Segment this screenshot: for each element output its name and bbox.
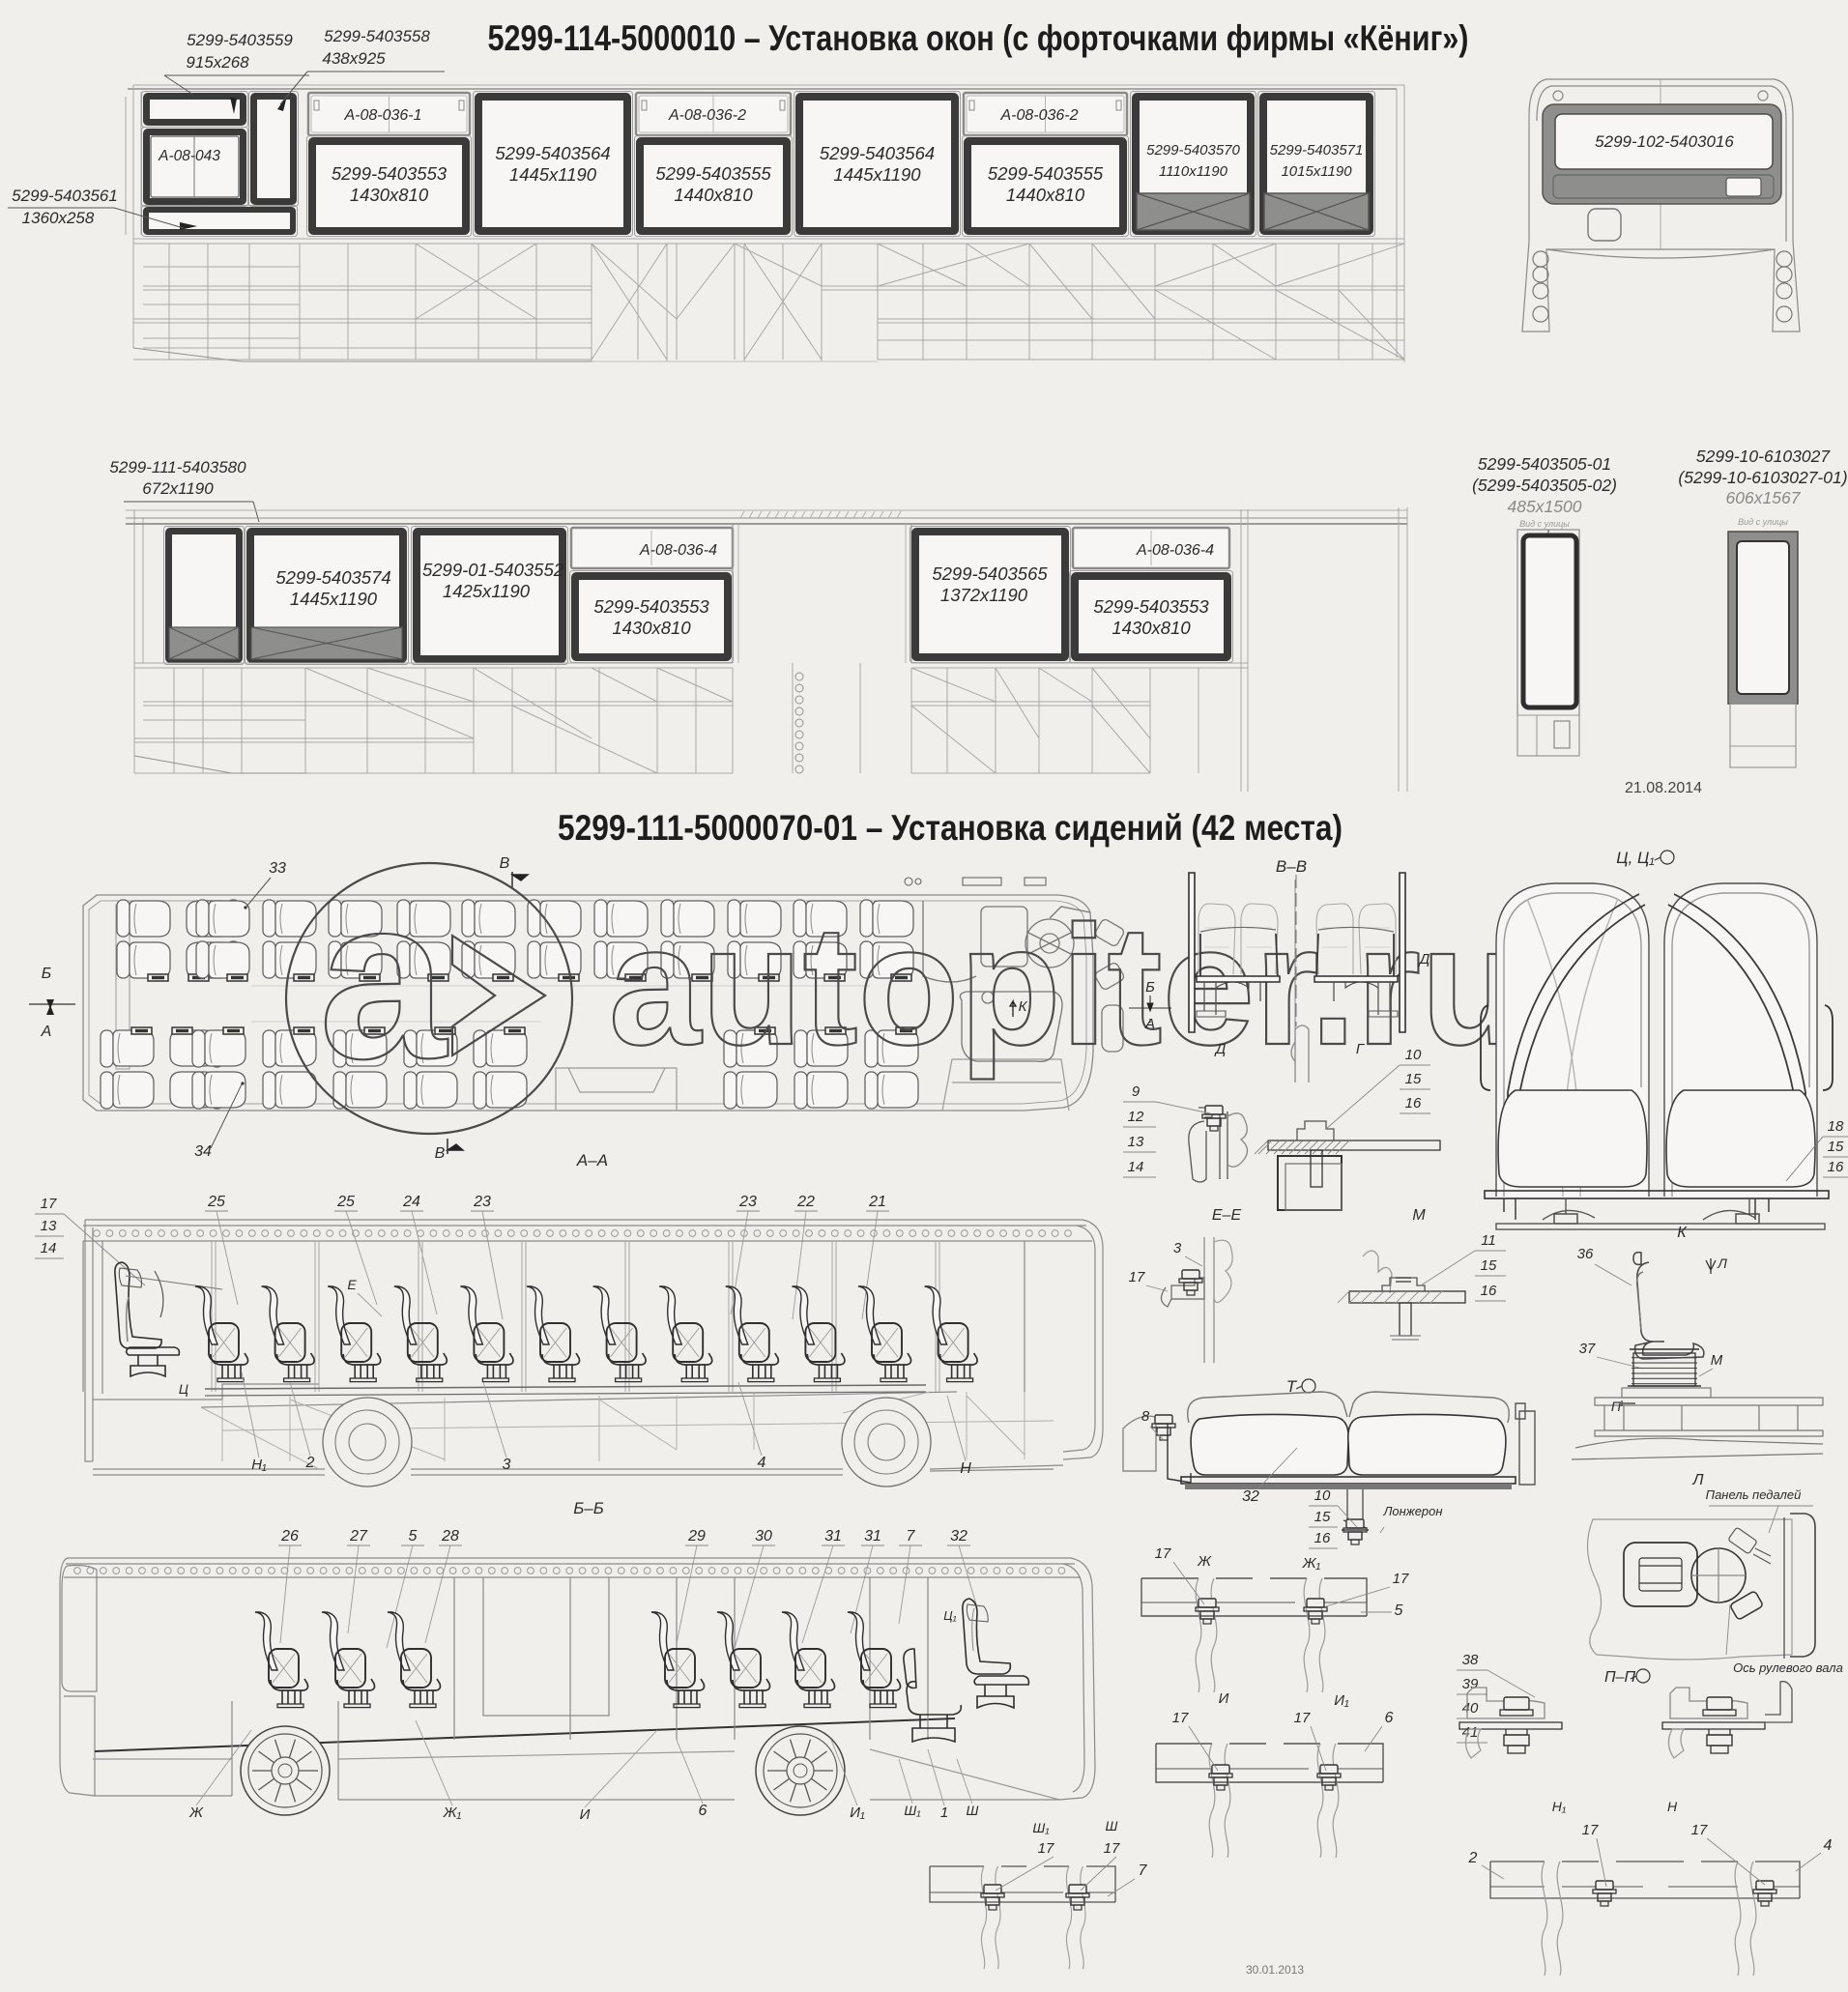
- svg-text:2: 2: [1468, 1850, 1478, 1866]
- svg-text:17: 17: [1129, 1269, 1145, 1285]
- svg-text:1360х258: 1360х258: [22, 209, 95, 227]
- svg-text:23: 23: [738, 1194, 757, 1210]
- svg-text:18: 18: [1828, 1118, 1844, 1135]
- svg-text:17: 17: [1393, 1571, 1409, 1587]
- svg-text:33: 33: [269, 860, 286, 877]
- svg-text:А: А: [1144, 1016, 1155, 1032]
- svg-text:Ц, Ц₁: Ц, Ц₁: [1616, 849, 1655, 867]
- svg-text:29: 29: [687, 1528, 706, 1545]
- svg-text:Н: Н: [960, 1460, 971, 1477]
- svg-text:А-08-036-4: А-08-036-4: [1136, 542, 1214, 559]
- svg-text:Вид с улицы: Вид с улицы: [1738, 517, 1788, 527]
- svg-text:5299-111-5000070-01 – Установк: 5299-111-5000070-01 – Установка сидений …: [558, 808, 1343, 848]
- svg-text:5299-114-5000010 – Установка о: 5299-114-5000010 – Установка окон (с фор…: [488, 18, 1469, 58]
- svg-text:17: 17: [1104, 1840, 1120, 1857]
- svg-text:Б–Б: Б–Б: [573, 1499, 604, 1517]
- svg-text:5299-5403553: 5299-5403553: [332, 163, 448, 184]
- svg-text:606х1567: 606х1567: [1726, 488, 1802, 507]
- svg-text:8: 8: [1141, 1408, 1150, 1425]
- svg-text:1110х1190: 1110х1190: [1159, 163, 1228, 180]
- svg-text:A-08-036-2: A-08-036-2: [999, 107, 1078, 124]
- svg-text:26: 26: [280, 1528, 299, 1545]
- svg-text:34: 34: [194, 1143, 212, 1160]
- svg-text:(5299-5403505-02): (5299-5403505-02): [1472, 476, 1617, 495]
- svg-text:27: 27: [349, 1528, 368, 1545]
- svg-text:К: К: [1677, 1225, 1688, 1241]
- svg-text:A-08-036-1: A-08-036-1: [343, 107, 421, 124]
- svg-text:3: 3: [503, 1457, 511, 1473]
- svg-text:15: 15: [1828, 1139, 1844, 1155]
- svg-text:915х268: 915х268: [186, 53, 249, 72]
- svg-text:5299-5403553: 5299-5403553: [1093, 596, 1209, 617]
- svg-text:1440х810: 1440х810: [1006, 185, 1085, 205]
- svg-text:Е: Е: [347, 1277, 357, 1292]
- svg-text:А: А: [41, 1024, 52, 1040]
- svg-text:Ж₁: Ж₁: [443, 1804, 462, 1821]
- svg-text:28: 28: [441, 1528, 459, 1545]
- svg-text:А-08-036-4: А-08-036-4: [639, 542, 717, 559]
- svg-text:И₁: И₁: [1334, 1692, 1349, 1709]
- svg-text:13: 13: [1128, 1134, 1144, 1150]
- svg-text:5299-10-6103027: 5299-10-6103027: [1696, 447, 1831, 466]
- svg-text:9: 9: [1132, 1083, 1141, 1100]
- svg-text:31: 31: [864, 1528, 881, 1545]
- svg-text:17: 17: [41, 1196, 57, 1212]
- svg-text:Ц: Ц: [179, 1381, 188, 1397]
- svg-text:1445х1190: 1445х1190: [833, 164, 921, 185]
- svg-text:3: 3: [1173, 1240, 1182, 1256]
- svg-text:1440х810: 1440х810: [674, 185, 753, 205]
- svg-text:1445х1190: 1445х1190: [290, 589, 378, 609]
- svg-text:10: 10: [1405, 1047, 1422, 1063]
- svg-text:38: 38: [1462, 1652, 1479, 1668]
- svg-text:1372х1190: 1372х1190: [940, 585, 1028, 605]
- svg-text:36: 36: [1577, 1246, 1594, 1262]
- svg-text:31: 31: [824, 1528, 842, 1545]
- svg-text:5299-5403564: 5299-5403564: [820, 143, 935, 163]
- svg-text:Ж: Ж: [188, 1804, 204, 1821]
- svg-text:17: 17: [1294, 1710, 1311, 1726]
- svg-text:17: 17: [1582, 1822, 1599, 1838]
- svg-text:5299-5403505-01: 5299-5403505-01: [1478, 454, 1611, 474]
- svg-text:15: 15: [1405, 1071, 1422, 1087]
- svg-text:24: 24: [402, 1194, 420, 1210]
- svg-text:30: 30: [755, 1528, 772, 1545]
- svg-text:30.01.2013: 30.01.2013: [1246, 1963, 1304, 1977]
- svg-text:21.08.2014: 21.08.2014: [1625, 780, 1702, 796]
- svg-text:И: И: [580, 1806, 591, 1823]
- svg-text:32: 32: [950, 1528, 967, 1545]
- svg-text:Ш₁: Ш₁: [904, 1803, 921, 1818]
- svg-text:25: 25: [336, 1194, 355, 1210]
- svg-text:1445х1190: 1445х1190: [509, 164, 597, 185]
- svg-text:М: М: [1711, 1352, 1723, 1369]
- svg-text:Н: Н: [1667, 1799, 1678, 1814]
- svg-text:25: 25: [207, 1194, 225, 1210]
- svg-text:7: 7: [1139, 1862, 1148, 1879]
- svg-text:17: 17: [1038, 1840, 1054, 1857]
- svg-text:4: 4: [1824, 1837, 1833, 1854]
- svg-text:485х1500: 485х1500: [1508, 497, 1582, 516]
- svg-text:14: 14: [41, 1240, 57, 1256]
- svg-text:И: И: [1219, 1690, 1229, 1707]
- svg-text:6: 6: [699, 1803, 707, 1819]
- svg-text:Ось рулевого вала: Ось рулевого вала: [1733, 1660, 1843, 1675]
- svg-text:5299-5403564: 5299-5403564: [495, 143, 610, 163]
- svg-text:5299-5403553: 5299-5403553: [593, 596, 709, 617]
- svg-text:16: 16: [1828, 1159, 1844, 1175]
- svg-text:5299-5403570: 5299-5403570: [1146, 142, 1240, 159]
- svg-text:5299-5403561: 5299-5403561: [12, 187, 118, 205]
- svg-text:5299-5403555: 5299-5403555: [988, 163, 1104, 184]
- svg-text:1430х810: 1430х810: [1112, 618, 1191, 638]
- svg-text:Ц₁: Ц₁: [943, 1608, 957, 1623]
- svg-text:1: 1: [940, 1804, 948, 1821]
- svg-text:22: 22: [796, 1194, 815, 1210]
- svg-text:П–П: П–П: [1604, 1669, 1635, 1686]
- svg-text:М: М: [1412, 1207, 1426, 1224]
- svg-text:Н₁: Н₁: [1552, 1799, 1567, 1814]
- svg-text:П: П: [1611, 1399, 1622, 1414]
- svg-text:(5299-10-6103027-01): (5299-10-6103027-01): [1678, 468, 1847, 487]
- svg-text:14: 14: [1128, 1159, 1144, 1175]
- svg-text:37: 37: [1579, 1341, 1596, 1357]
- svg-text:5: 5: [1395, 1602, 1403, 1619]
- svg-text:5299-5403559: 5299-5403559: [187, 31, 293, 49]
- svg-text:16: 16: [1481, 1283, 1497, 1299]
- svg-text:21: 21: [868, 1194, 886, 1210]
- svg-text:Панель педалей: Панель педалей: [1706, 1487, 1802, 1502]
- svg-text:2: 2: [305, 1455, 315, 1471]
- svg-text:Н₁: Н₁: [251, 1457, 267, 1473]
- svg-text:15: 15: [1481, 1257, 1497, 1274]
- svg-text:7: 7: [907, 1528, 916, 1545]
- svg-text:5299-102-5403016: 5299-102-5403016: [1595, 132, 1734, 151]
- svg-text:17: 17: [1155, 1545, 1171, 1562]
- svg-text:A-08-036-2: A-08-036-2: [668, 107, 746, 124]
- svg-text:Д: Д: [1418, 951, 1430, 967]
- svg-text:5299-01-5403552: 5299-01-5403552: [422, 560, 564, 580]
- svg-text:autopiter.ru: autopiter.ru: [609, 891, 1522, 1081]
- svg-text:23: 23: [473, 1194, 491, 1210]
- svg-text:Ш: Ш: [967, 1803, 979, 1818]
- svg-text:10: 10: [1314, 1487, 1331, 1504]
- svg-text:4: 4: [758, 1455, 766, 1471]
- svg-text:Б: Б: [1145, 979, 1155, 996]
- svg-text:5299-5403555: 5299-5403555: [655, 163, 771, 184]
- svg-text:Ж: Ж: [1197, 1553, 1212, 1570]
- svg-text:Лонжерон: Лонжерон: [1382, 1504, 1442, 1518]
- svg-text:5299-111-5403580: 5299-111-5403580: [109, 458, 246, 476]
- svg-text:13: 13: [41, 1218, 57, 1234]
- svg-text:Б: Б: [42, 966, 51, 982]
- svg-text:Ж₁: Ж₁: [1302, 1555, 1321, 1572]
- svg-text:438х925: 438х925: [322, 49, 386, 68]
- svg-text:40: 40: [1462, 1700, 1479, 1717]
- svg-text:16: 16: [1405, 1095, 1422, 1111]
- svg-text:1430х810: 1430х810: [612, 618, 691, 638]
- svg-text:И₁: И₁: [850, 1804, 865, 1821]
- svg-text:32: 32: [1242, 1488, 1259, 1505]
- svg-text:Ш: Ш: [1106, 1818, 1118, 1833]
- svg-text:5299-5403558: 5299-5403558: [324, 27, 430, 45]
- svg-text:Е–Е: Е–Е: [1212, 1207, 1242, 1224]
- svg-text:15: 15: [1314, 1509, 1331, 1525]
- svg-text:1430х810: 1430х810: [350, 185, 429, 205]
- svg-text:В–В: В–В: [1276, 857, 1307, 876]
- svg-text:5299-5403565: 5299-5403565: [932, 563, 1048, 584]
- svg-text:672х1190: 672х1190: [142, 479, 214, 498]
- svg-text:a: a: [319, 851, 448, 1107]
- svg-text:Вид с улицы: Вид с улицы: [1519, 519, 1570, 529]
- svg-text:Л: Л: [1717, 1256, 1727, 1271]
- svg-text:1425х1190: 1425х1190: [443, 581, 531, 601]
- svg-text:5299-5403574: 5299-5403574: [275, 567, 390, 588]
- svg-text:Л: Л: [1692, 1472, 1704, 1488]
- svg-text:6: 6: [1385, 1710, 1394, 1726]
- svg-text:А-08-043: А-08-043: [158, 148, 220, 164]
- svg-text:Д: Д: [1214, 1041, 1227, 1057]
- svg-text:16: 16: [1314, 1530, 1331, 1546]
- svg-text:5299-5403571: 5299-5403571: [1270, 142, 1364, 159]
- svg-text:А–А: А–А: [576, 1151, 608, 1169]
- svg-text:11: 11: [1481, 1232, 1496, 1249]
- svg-text:5: 5: [409, 1528, 418, 1545]
- svg-text:41: 41: [1462, 1724, 1479, 1741]
- svg-text:12: 12: [1128, 1109, 1144, 1125]
- svg-text:1015х1190: 1015х1190: [1281, 163, 1352, 180]
- svg-text:17: 17: [1172, 1710, 1189, 1726]
- svg-text:17: 17: [1691, 1822, 1708, 1838]
- svg-text:В: В: [435, 1145, 446, 1162]
- svg-text:В: В: [500, 855, 510, 872]
- svg-text:Ш₁: Ш₁: [1032, 1820, 1050, 1835]
